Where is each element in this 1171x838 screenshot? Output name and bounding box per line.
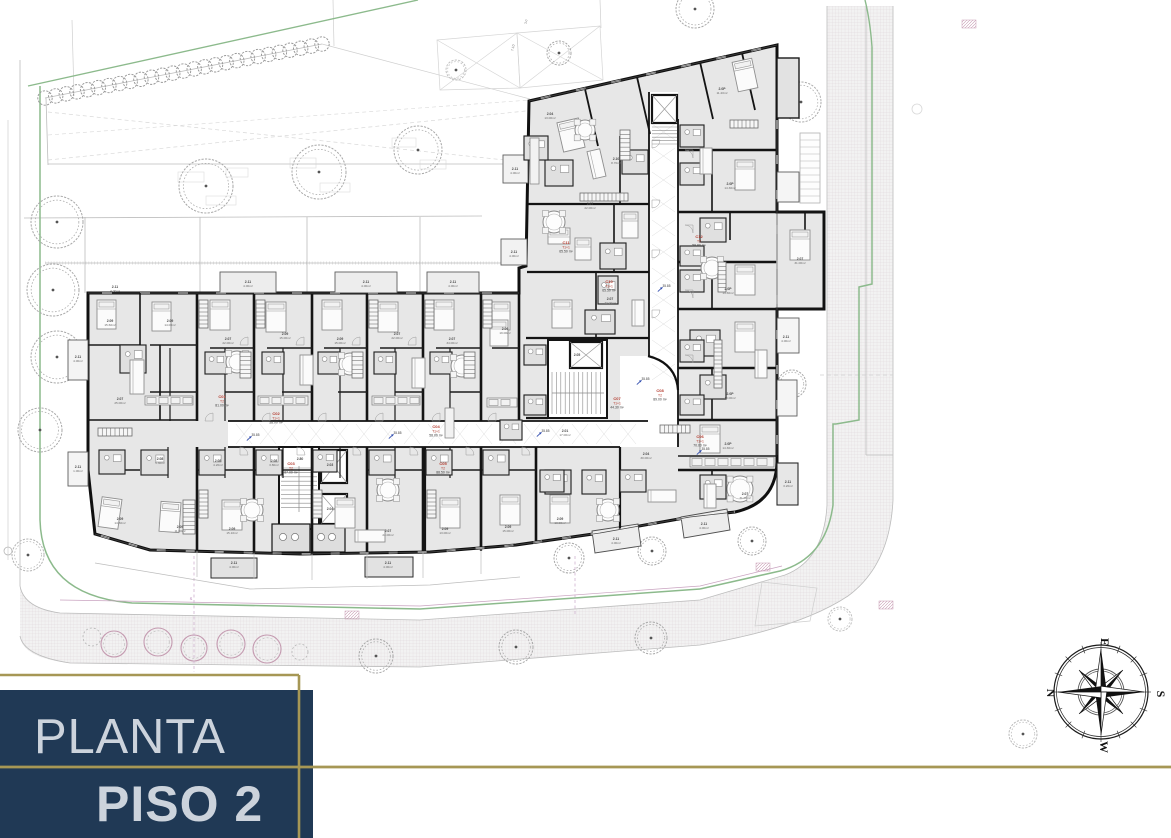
svg-text:S: S — [1154, 691, 1168, 698]
svg-text:4.00m²: 4.00m² — [229, 565, 239, 569]
svg-text:4.00m²: 4.00m² — [611, 541, 621, 545]
svg-text:33.00m²: 33.00m² — [604, 301, 615, 305]
svg-text:4.00m²: 4.00m² — [243, 284, 253, 288]
svg-text:13.00m²: 13.00m² — [554, 521, 565, 525]
svg-text:C10: C10 — [605, 279, 613, 284]
svg-text:58.00 m²: 58.00 m² — [429, 434, 443, 438]
svg-text:11.00m²: 11.00m² — [174, 529, 185, 533]
svg-text:88.50 m²: 88.50 m² — [436, 471, 450, 475]
svg-text:C12: C12 — [695, 234, 703, 239]
svg-text:11.20m²: 11.20m² — [716, 91, 727, 95]
svg-text:2.04: 2.04 — [327, 507, 334, 511]
svg-text:35.85: 35.85 — [542, 429, 550, 433]
svg-text:4.00m²: 4.00m² — [361, 284, 371, 288]
svg-text:N: N — [1044, 689, 1058, 698]
svg-text:15.00m²: 15.00m² — [334, 341, 345, 345]
svg-text:2.80: 2.80 — [297, 457, 304, 461]
svg-text:14.50m²: 14.50m² — [114, 521, 125, 525]
svg-text:13.00m²: 13.00m² — [439, 531, 450, 535]
svg-text:4.00m²: 4.00m² — [509, 254, 519, 258]
svg-text:C02: C02 — [272, 411, 280, 416]
svg-text:C01: C01 — [218, 394, 226, 399]
svg-text:65.50 m²: 65.50 m² — [602, 289, 616, 293]
svg-text:2.03: 2.03 — [327, 463, 334, 467]
svg-text:5.30m²: 5.30m² — [155, 461, 165, 465]
svg-text:13.00m²: 13.00m² — [724, 396, 735, 400]
svg-text:35.85: 35.85 — [663, 284, 671, 288]
svg-text:81.00 m²: 81.00 m² — [215, 404, 229, 408]
svg-text:S: S — [190, 596, 193, 601]
svg-text:31.00m²: 31.00m² — [739, 496, 750, 500]
svg-text:4.00m²: 4.00m² — [699, 526, 709, 530]
svg-text:35.85: 35.85 — [252, 433, 260, 437]
svg-text:3.80m²: 3.80m² — [269, 463, 279, 467]
svg-text:17.00m²: 17.00m² — [559, 433, 570, 437]
svg-text:44.30 m²: 44.30 m² — [610, 406, 624, 410]
svg-text:14.30m²: 14.30m² — [724, 186, 735, 190]
svg-text:13.00m²: 13.00m² — [544, 116, 555, 120]
svg-text:15.10m²: 15.10m² — [226, 531, 237, 535]
svg-text:C07: C07 — [613, 396, 621, 401]
svg-text:8.70m²: 8.70m² — [611, 161, 621, 165]
svg-text:C05: C05 — [439, 461, 447, 466]
svg-text:58.00 m²: 58.00 m² — [269, 421, 283, 425]
svg-text:C06: C06 — [696, 434, 704, 439]
svg-text:4.00m²: 4.00m² — [781, 339, 791, 343]
svg-text:35.85: 35.85 — [702, 447, 710, 451]
svg-text:30.00m²: 30.00m² — [640, 456, 651, 460]
svg-text:25.00m²: 25.00m² — [114, 401, 125, 405]
svg-text:58.80 m²: 58.80 m² — [692, 244, 706, 248]
svg-text:15.00m²: 15.00m² — [279, 336, 290, 340]
svg-text:4.20m²: 4.20m² — [213, 463, 223, 467]
svg-text:4.00m²: 4.00m² — [73, 359, 83, 363]
svg-text:4.00m²: 4.00m² — [448, 284, 458, 288]
svg-text:35.85: 35.85 — [642, 377, 650, 381]
svg-text:4.00m²: 4.00m² — [383, 565, 393, 569]
svg-text:22.00m²: 22.00m² — [222, 341, 233, 345]
svg-text:4.00m²: 4.00m² — [110, 289, 120, 293]
svg-text:65.50 m²: 65.50 m² — [559, 250, 573, 254]
svg-text:4.00m²: 4.00m² — [510, 171, 520, 175]
svg-text:14.30m²: 14.30m² — [722, 446, 733, 450]
svg-text:14.30m²: 14.30m² — [722, 291, 733, 295]
svg-text:34.00m²: 34.00m² — [446, 341, 457, 345]
svg-text:24.00m²: 24.00m² — [382, 533, 393, 537]
svg-text:87.00 m²: 87.00 m² — [284, 471, 298, 475]
svg-text:22.00m²: 22.00m² — [391, 336, 402, 340]
svg-text:2.05: 2.05 — [574, 353, 581, 357]
svg-text:19.00m²: 19.00m² — [499, 331, 510, 335]
svg-text:1.00m²: 1.00m² — [73, 469, 83, 473]
svg-text:15.60m²: 15.60m² — [104, 323, 115, 327]
svg-text:22.00m²: 22.00m² — [584, 206, 595, 210]
svg-text:15.00m²: 15.00m² — [502, 529, 513, 533]
svg-text:3.20m²: 3.20m² — [783, 484, 793, 488]
svg-text:89.00 m²: 89.00 m² — [653, 398, 667, 402]
svg-text:35.85: 35.85 — [394, 431, 402, 435]
svg-text:14.00m²: 14.00m² — [164, 323, 175, 327]
svg-text:C03: C03 — [287, 461, 295, 466]
svg-text:31.00m²: 31.00m² — [794, 261, 805, 265]
svg-text:C04: C04 — [432, 424, 440, 429]
svg-text:C08: C08 — [656, 388, 664, 393]
svg-text:W: W — [1097, 741, 1111, 753]
svg-text:PLANTA: PLANTA — [34, 710, 226, 764]
svg-text:PISO 2: PISO 2 — [96, 776, 263, 832]
svg-text:E: E — [1098, 638, 1112, 646]
svg-text:C11: C11 — [562, 240, 570, 245]
